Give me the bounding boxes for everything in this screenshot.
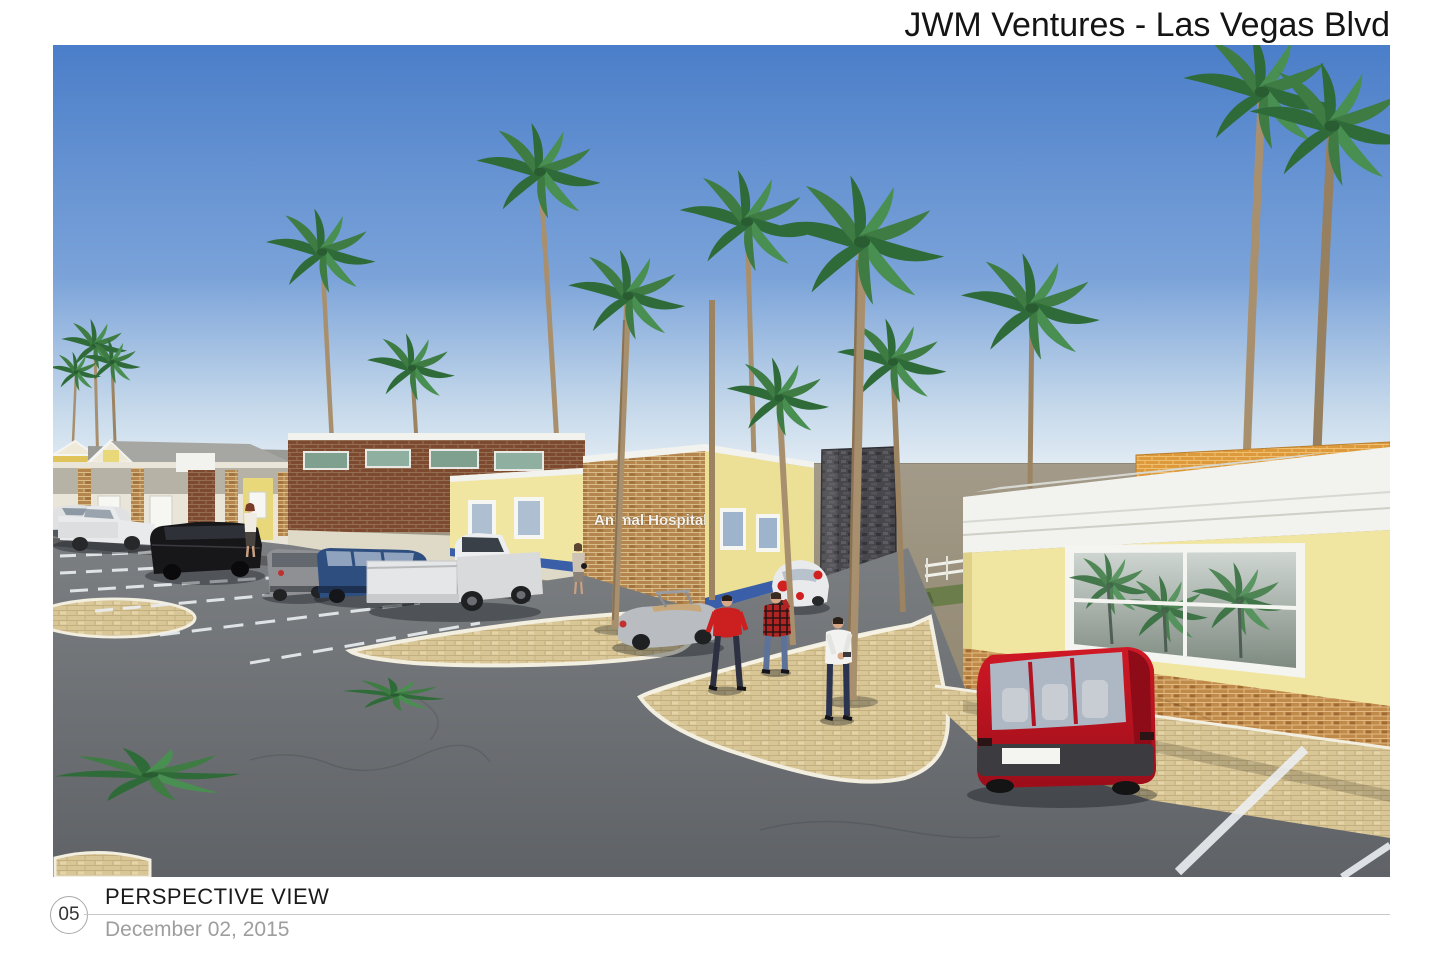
presentation-sheet: JWM Ventures - Las Vegas Blvd (0, 0, 1440, 960)
sheet-number-badge: 05 (50, 896, 88, 934)
view-date: December 02, 2015 (105, 918, 289, 942)
sheet-number-text: 05 (58, 904, 79, 926)
sky (53, 45, 1390, 467)
titleblock-divider (84, 914, 1390, 915)
red-minivan (977, 647, 1156, 795)
animal-hospital-sign: Animal Hospital (594, 512, 707, 529)
paver-corner-bottom-left (55, 852, 150, 877)
view-label: PERSPECTIVE VIEW (105, 884, 329, 910)
sheet-title: JWM Ventures - Las Vegas Blvd (904, 6, 1390, 45)
perspective-rendering: Animal Hospital (53, 45, 1390, 877)
